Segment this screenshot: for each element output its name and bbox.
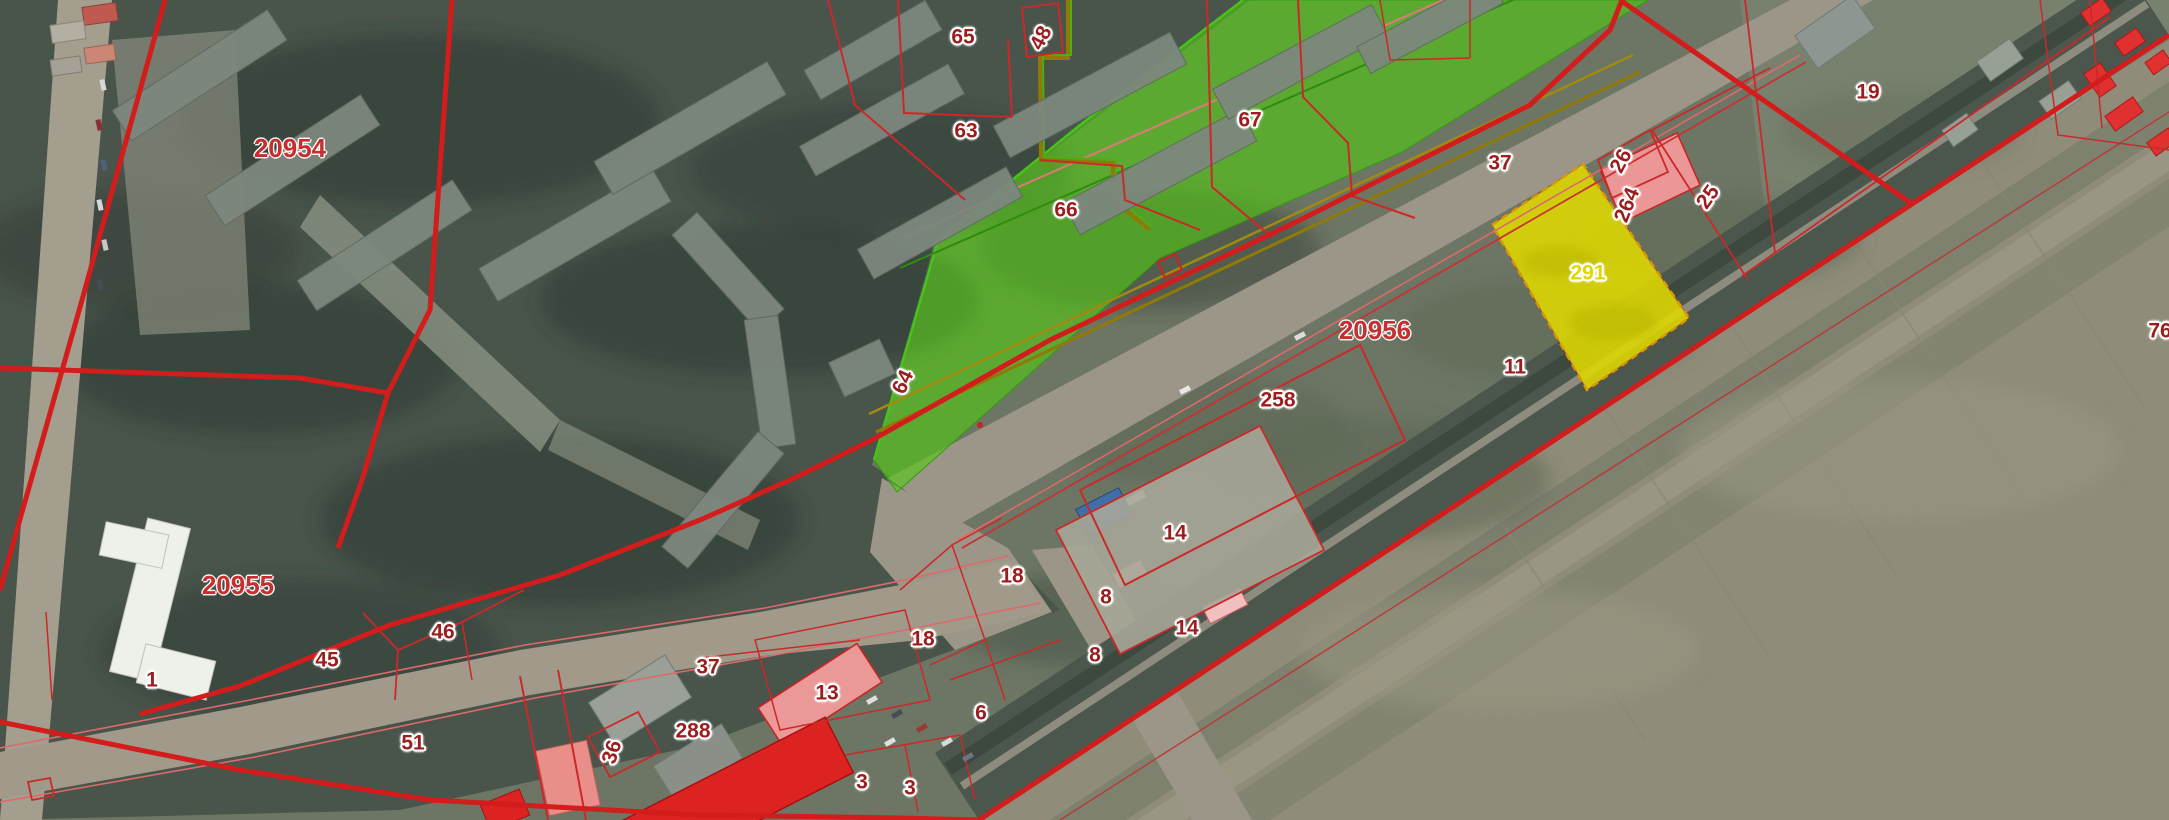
- map-canvas: [0, 0, 2169, 820]
- cadastral-map-viewport[interactable]: 2095420955209566548636667372626425192911…: [0, 0, 2169, 820]
